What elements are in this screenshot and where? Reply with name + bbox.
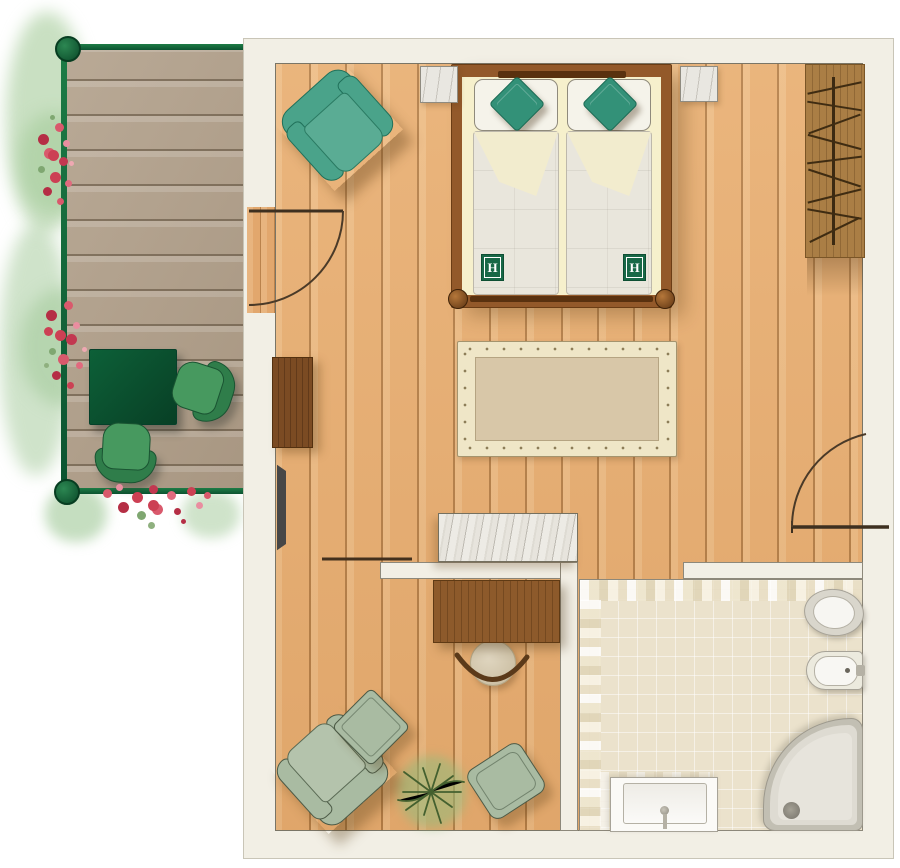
desk <box>433 580 560 643</box>
desk-chair-seat <box>470 640 516 686</box>
marble-counter <box>438 513 578 562</box>
shower-drain <box>783 802 800 819</box>
geranium-flowers-top <box>48 150 59 161</box>
footboard-knob-left <box>448 289 468 309</box>
railing-post-bottom <box>54 479 80 505</box>
balcony-chair-bottom <box>95 417 158 484</box>
bidet-tap <box>856 665 865 676</box>
hotel-monogram-badge: H <box>623 254 646 281</box>
bathroom-wall-top <box>683 562 863 579</box>
nightstand-left <box>420 66 458 103</box>
washbasin <box>610 777 718 832</box>
watercolor-greenery <box>182 490 240 538</box>
washbasin-tap-stem <box>663 814 667 829</box>
area-rug <box>457 341 677 457</box>
bidet-drain <box>845 668 850 673</box>
hotel-monogram-badge: H <box>481 254 504 281</box>
double-bed: H H <box>451 64 672 308</box>
wardrobe-shadow <box>807 258 863 296</box>
chair-seat <box>101 422 151 471</box>
rug-field <box>475 357 659 441</box>
footboard-knob-right <box>655 289 675 309</box>
balcony-railing-left <box>61 44 67 496</box>
mosaic-tile-strip <box>580 600 601 830</box>
balcony-door-threshold <box>247 207 275 313</box>
rug-ornament-border <box>462 443 672 454</box>
rug-ornament-border <box>663 346 674 452</box>
rug-ornament-border <box>460 346 471 452</box>
balcony-table <box>89 349 177 425</box>
railing-post-top <box>55 36 81 62</box>
floor-plan-canvas: H H <box>0 0 900 868</box>
nightstand-right <box>680 66 718 102</box>
dresser <box>272 357 313 448</box>
balcony-railing-top <box>61 44 243 50</box>
bidet <box>806 651 863 690</box>
plant-foliage-wash <box>398 756 466 828</box>
partition-wall <box>380 562 578 579</box>
geranium-flowers-bottom <box>148 500 159 511</box>
bidet-bowl <box>814 656 858 686</box>
duvet-right: H <box>566 131 652 295</box>
geranium-flowers-middle <box>55 330 66 341</box>
duvet-left: H <box>473 131 559 295</box>
rug-ornament-border <box>462 344 672 355</box>
balcony-railing-bottom <box>57 488 243 494</box>
wardrobe <box>805 64 865 258</box>
monogram-letter: H <box>626 257 643 278</box>
footboard-rail <box>470 296 653 302</box>
wall-mounted-panel <box>277 463 286 552</box>
bathroom-wall-left <box>560 562 578 831</box>
monogram-letter: H <box>484 257 501 278</box>
